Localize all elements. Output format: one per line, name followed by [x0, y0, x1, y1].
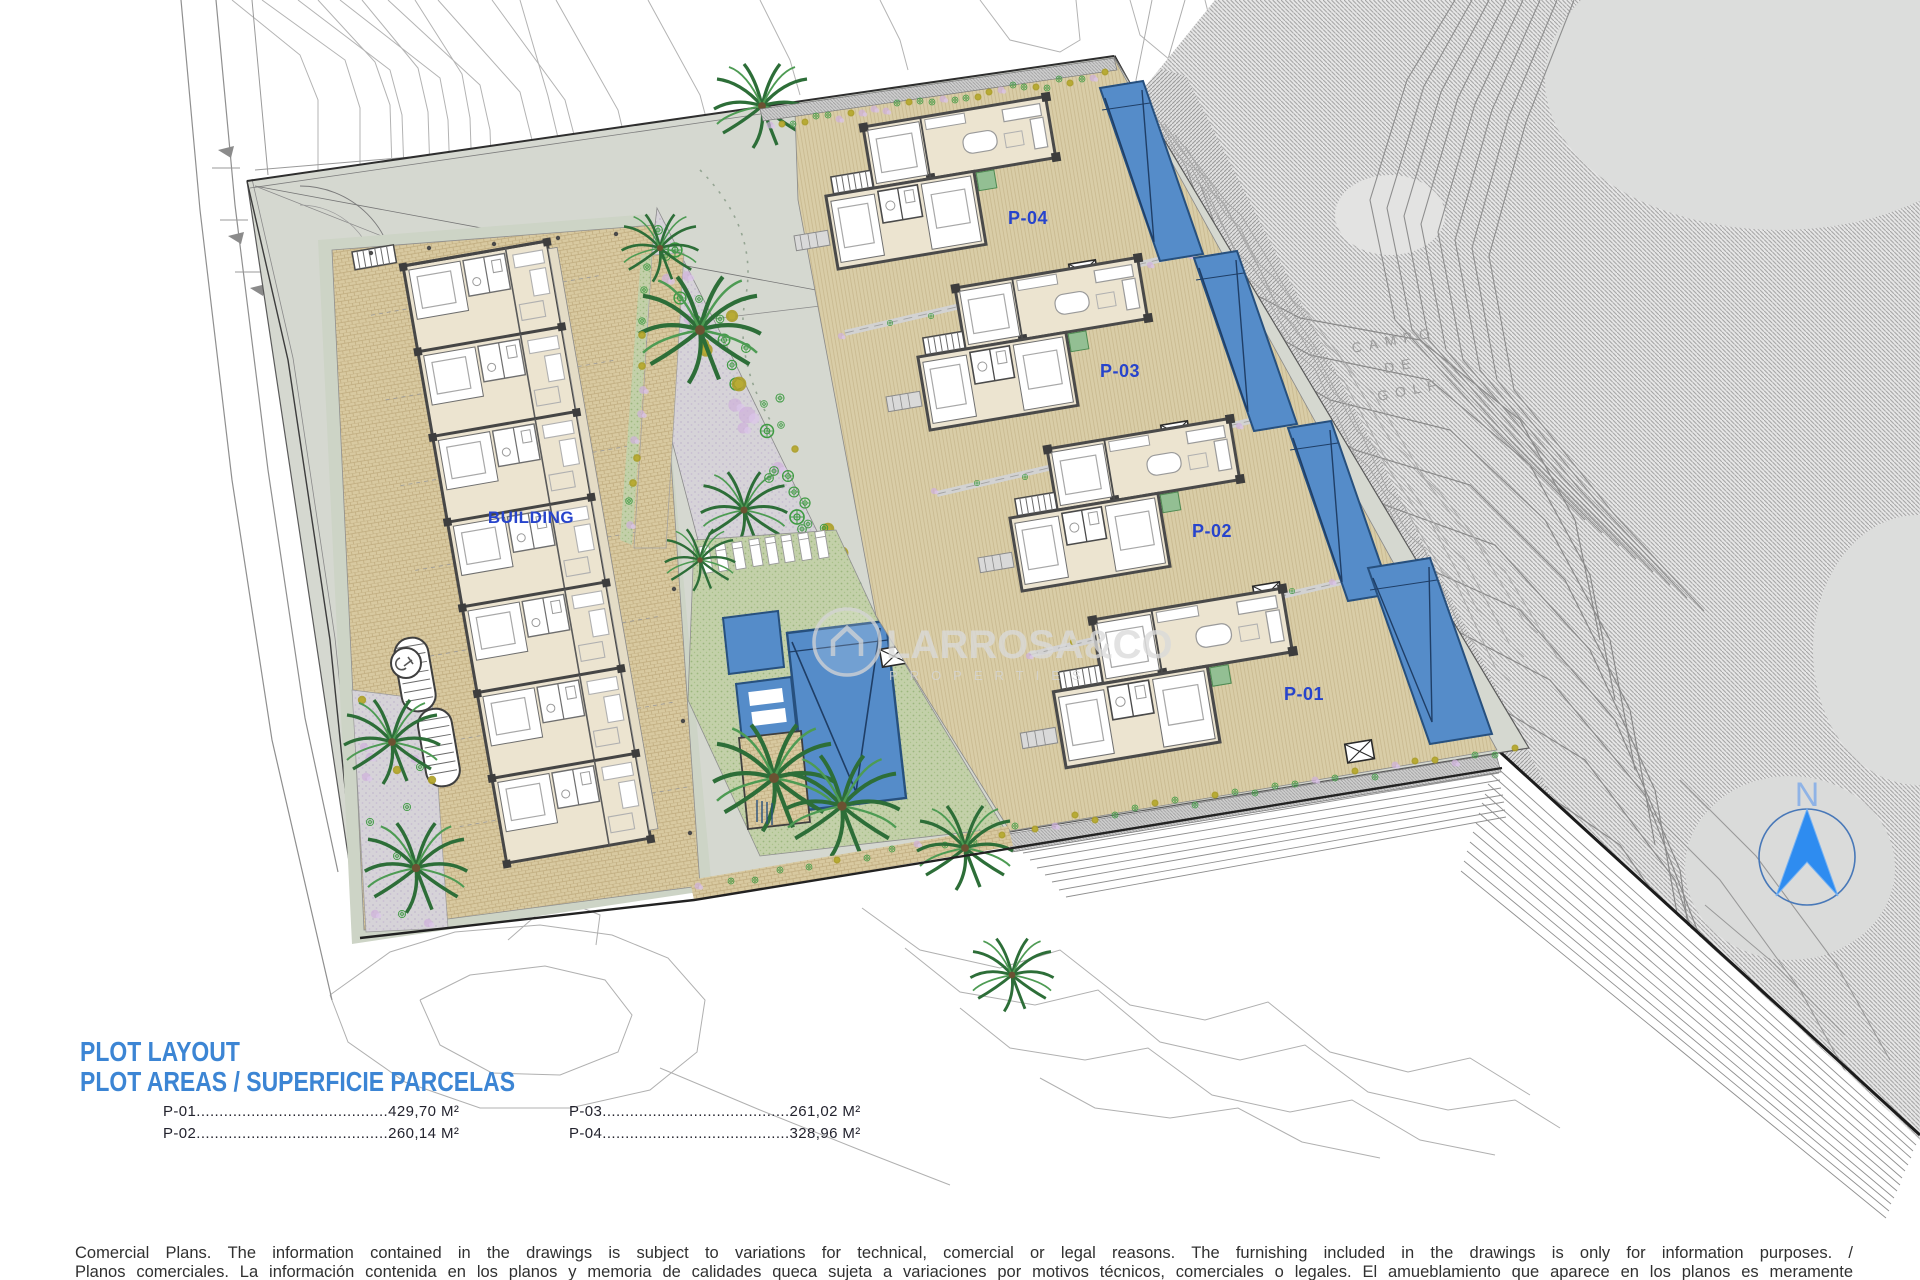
- svg-text:P-03: P-03: [1100, 361, 1140, 381]
- svg-text:P-02: P-02: [1192, 521, 1232, 541]
- svg-text:LARROSA&CO: LARROSA&CO: [886, 623, 1173, 667]
- svg-text:PROPERTIES: PROPERTIES: [889, 668, 1093, 683]
- svg-text:N: N: [1795, 776, 1820, 814]
- svg-text:BUILDING: BUILDING: [488, 508, 574, 527]
- svg-text:P-04: P-04: [1008, 208, 1048, 228]
- svg-text:P-01: P-01: [1284, 684, 1324, 704]
